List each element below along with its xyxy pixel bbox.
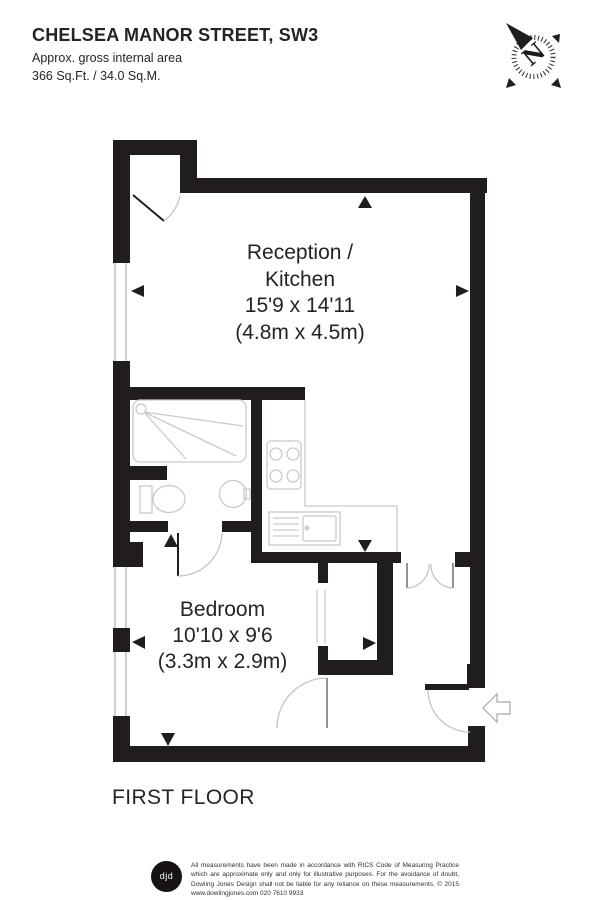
- floor-plan: [0, 0, 600, 900]
- room-name: Bedroom: [105, 597, 340, 623]
- page-title: CHELSEA MANOR STREET, SW3: [32, 25, 318, 46]
- bathroom-kitchen-fixtures: [133, 400, 397, 552]
- toilet-icon: [140, 486, 185, 514]
- room-dimensions-imperial: 15'9 x 14'11: [180, 293, 420, 320]
- djd-logo: djd: [151, 861, 182, 892]
- header: CHELSEA MANOR STREET, SW3 Approx. gross …: [32, 25, 318, 85]
- reception-kitchen-label: Reception / Kitchen 15'9 x 14'11 (4.8m x…: [180, 240, 420, 346]
- room-name-line2: Kitchen: [180, 267, 420, 294]
- hob-icon: [267, 441, 301, 489]
- basin-icon: [220, 481, 251, 508]
- room-dimensions-metric: (4.8m x 4.5m): [180, 320, 420, 347]
- entry-arrow-icon: [483, 694, 510, 722]
- header-area: 366 Sq.Ft. / 34.0 Sq.M.: [32, 68, 318, 86]
- floor-label: FIRST FLOOR: [112, 786, 255, 810]
- room-dimensions-imperial: 10'10 x 9'6: [105, 623, 340, 649]
- room-name-line1: Reception /: [180, 240, 420, 267]
- disclaimer-text: All measurements have been made in accor…: [191, 861, 459, 898]
- floorplan-page: N CHELSEA MANOR STREET, SW3 Approx. gros…: [0, 0, 600, 900]
- bedroom-label: Bedroom 10'10 x 9'6 (3.3m x 2.9m): [105, 597, 340, 675]
- shower-icon: [133, 400, 246, 462]
- kitchen-counter: [305, 400, 397, 552]
- header-subtitle: Approx. gross internal area: [32, 50, 318, 68]
- room-dimensions-metric: (3.3m x 2.9m): [105, 649, 340, 675]
- sink-icon: [269, 512, 340, 545]
